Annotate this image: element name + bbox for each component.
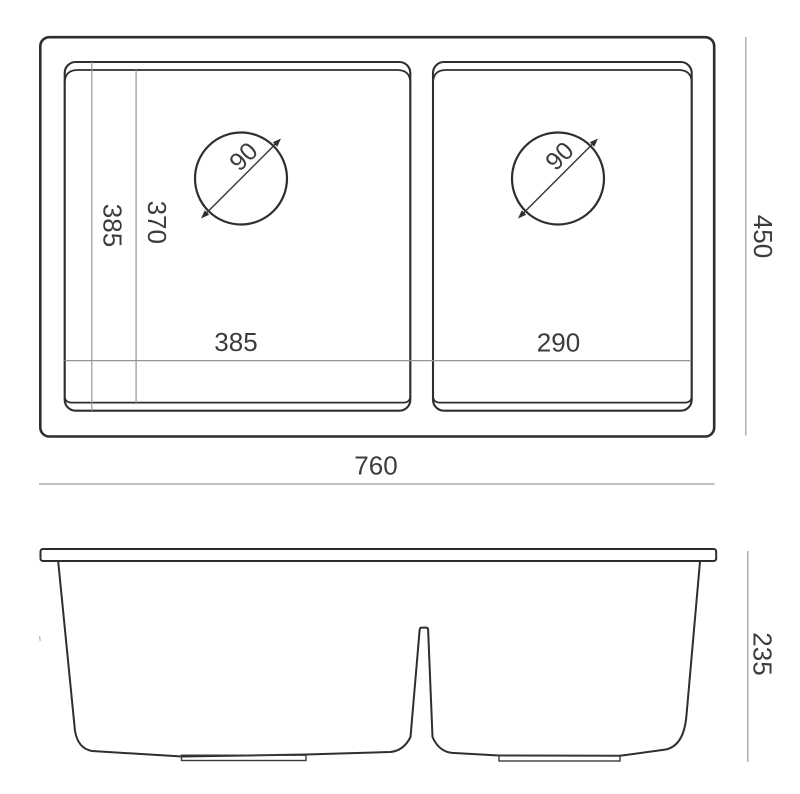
svg-text:760: 760 — [354, 450, 397, 480]
svg-text:385: 385 — [214, 327, 257, 357]
svg-text:370: 370 — [142, 201, 172, 244]
svg-text:235: 235 — [748, 632, 778, 675]
svg-text:450: 450 — [748, 215, 778, 258]
svg-text:385: 385 — [98, 204, 128, 247]
svg-text:290: 290 — [537, 327, 580, 357]
